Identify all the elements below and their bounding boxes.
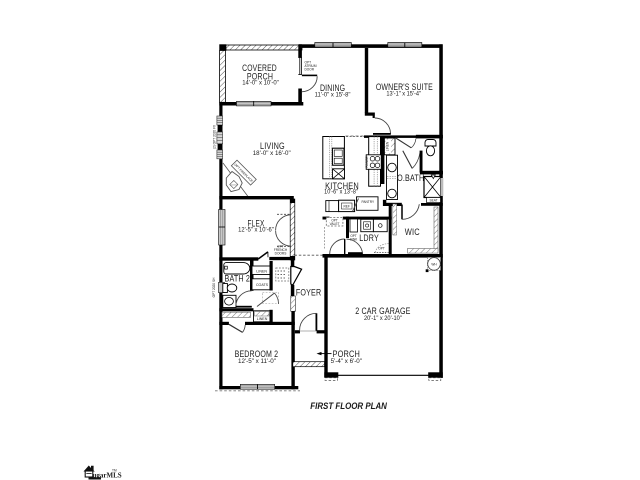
svg-text:DINING: DINING (320, 83, 345, 93)
svg-text:TM: TM (112, 469, 117, 473)
svg-text:ugarMLS: ugarMLS (93, 471, 122, 479)
svg-text:DOOR: DOOR (305, 68, 315, 72)
svg-text:LINEN: LINEN (386, 141, 390, 151)
svg-text:12'-5" x 11'-0": 12'-5" x 11'-0" (238, 359, 276, 365)
svg-text:11'-0" x 15'-8": 11'-0" x 15'-8" (315, 93, 351, 99)
svg-text:BEDROOM 2: BEDROOM 2 (235, 349, 279, 359)
svg-text:13'-1" x 15'-4": 13'-1" x 15'-4" (386, 91, 421, 97)
svg-text:14'-0" x 10'-0": 14'-0" x 10'-0" (242, 80, 279, 86)
svg-text:REF: REF (344, 205, 350, 209)
svg-text:OPT 2020 SH: OPT 2020 SH (212, 277, 216, 297)
svg-text:FOYER: FOYER (296, 287, 321, 297)
svg-text:FIRST FLOOR PLAN: FIRST FLOOR PLAN (310, 401, 387, 411)
svg-text:(2) OPT 2020 FX: (2) OPT 2020 FX (213, 124, 217, 149)
svg-text:LIVING: LIVING (260, 141, 285, 151)
svg-text:SEAT: SEAT (429, 199, 437, 203)
svg-text:12'-5" x 10'-6": 12'-5" x 10'-6" (238, 228, 274, 234)
svg-text:LINEN: LINEN (257, 317, 268, 321)
svg-text:BATH 2: BATH 2 (225, 273, 251, 283)
svg-text:VALET: VALET (330, 222, 340, 226)
svg-text:5'-4" x 6'-0": 5'-4" x 6'-0" (331, 359, 362, 365)
svg-text:WIC: WIC (405, 227, 420, 237)
svg-text:18'-0" x 16'-0": 18'-0" x 16'-0" (253, 151, 291, 157)
svg-text:10'-6" x 13'-8": 10'-6" x 13'-8" (324, 190, 358, 196)
svg-text:LINEN: LINEN (256, 269, 267, 273)
svg-text:PANTRY: PANTRY (361, 200, 375, 204)
svg-text:DOORS: DOORS (275, 252, 287, 256)
svg-text:LDRY: LDRY (359, 233, 379, 243)
svg-text:20'-1" x 20'-10": 20'-1" x 20'-10" (364, 316, 402, 322)
svg-text:COATS: COATS (256, 283, 269, 287)
svg-text:WH: WH (431, 262, 437, 266)
svg-text:OWNER'S SUITE: OWNER'S SUITE (376, 82, 433, 92)
svg-text:2 CAR GARAGE: 2 CAR GARAGE (355, 306, 410, 316)
svg-text:OPT: OPT (378, 247, 385, 251)
svg-text:RANGE: RANGE (365, 156, 369, 167)
svg-text:PORCH: PORCH (333, 349, 361, 359)
svg-text:O.BATH: O.BATH (397, 173, 424, 183)
